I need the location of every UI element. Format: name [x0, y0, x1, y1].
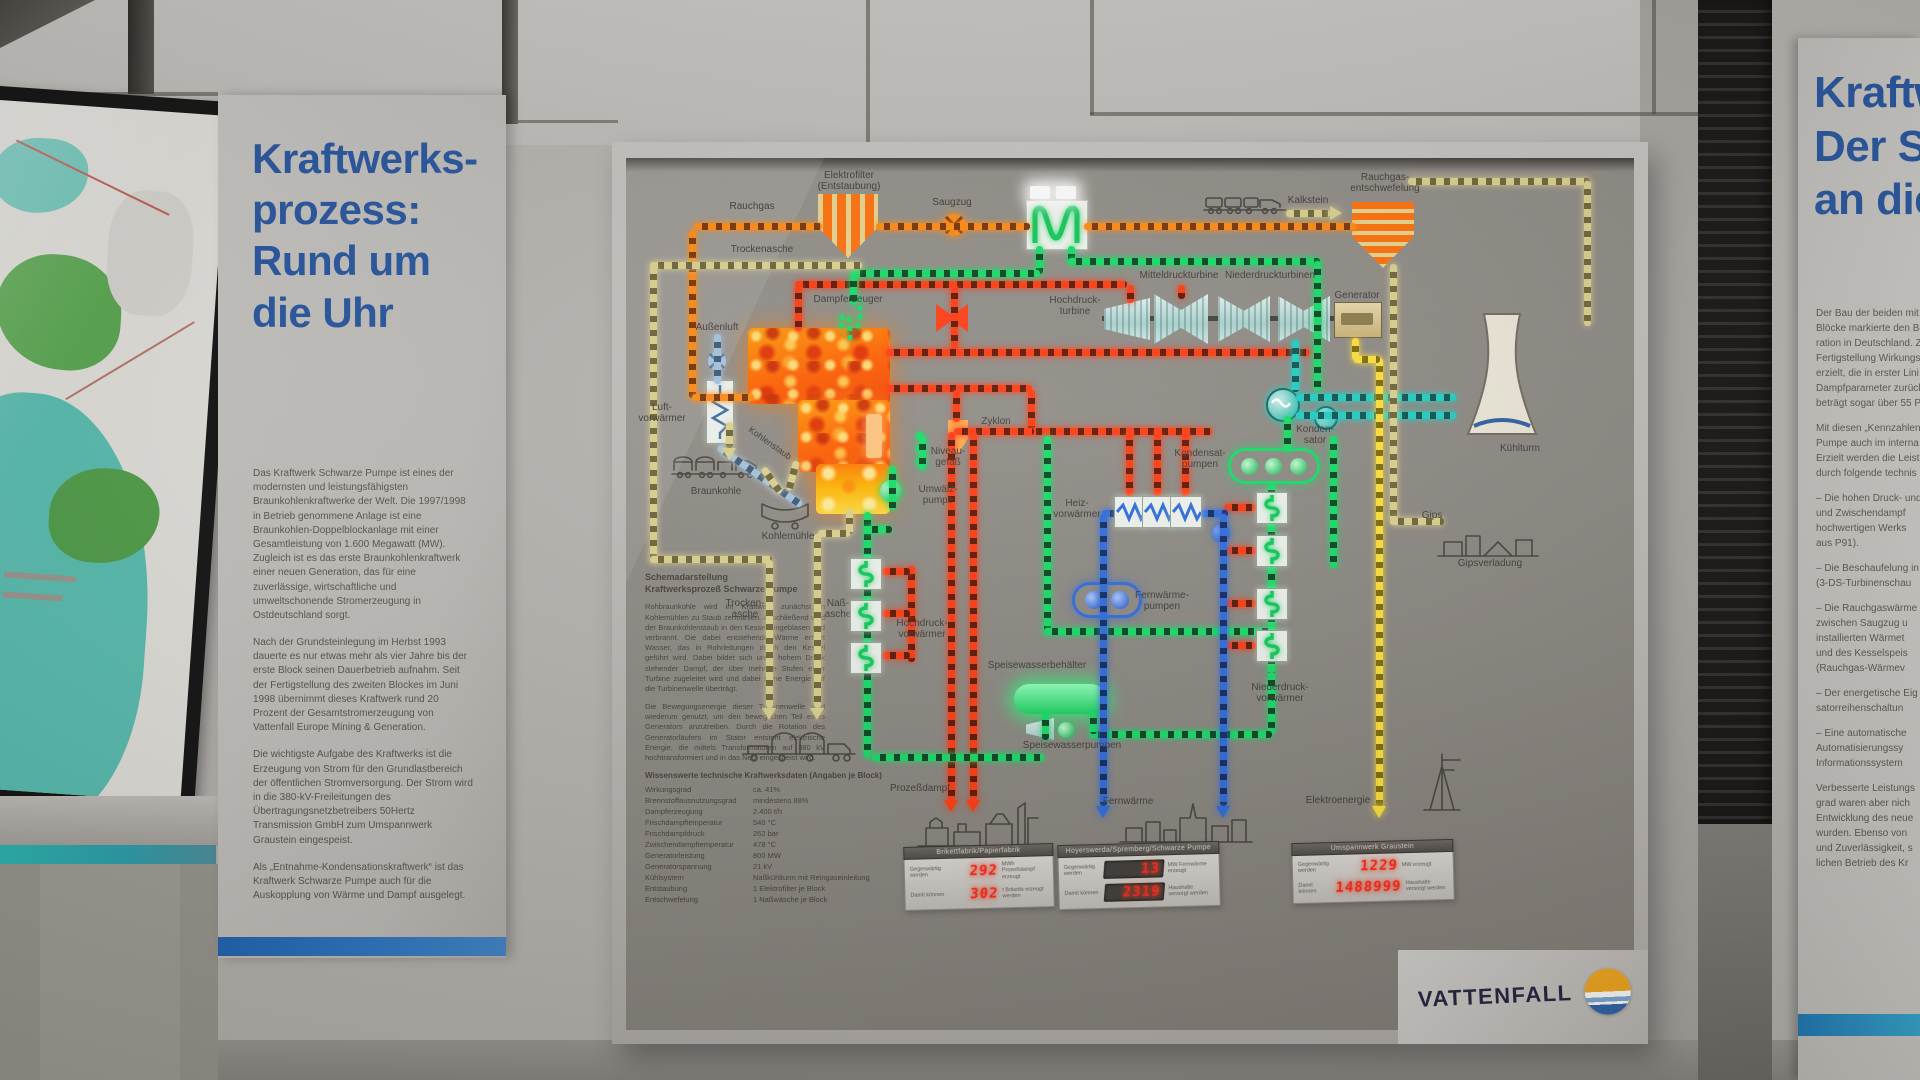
- pump-circle: [1290, 458, 1307, 475]
- mitteldruckturbine-icon: [1154, 294, 1208, 344]
- display-row-right-label: MW erzeugt: [1402, 861, 1448, 869]
- display-body: Gegenwärtig werden292MWh Prozeßdampf erz…: [904, 856, 1055, 911]
- legend-data-value: 800 MW: [753, 851, 875, 860]
- lbl-zyklon: Zyklon: [981, 416, 1010, 427]
- display-body: Gegenwärtig werden13MW Fernwärme erzeugt…: [1058, 854, 1221, 910]
- pipe-ndv-stub-2: [1224, 547, 1256, 554]
- hd-vorwaermer-box: [850, 558, 882, 590]
- pipe-umwaelz-v: [889, 466, 896, 510]
- right-panel-accent-stripe: [1798, 1014, 1920, 1036]
- arrow-luvo-asche: [722, 448, 736, 460]
- lbl-gipsverladung: Gipsverladung: [1458, 558, 1522, 569]
- legend-data-label: Dampferzeugung: [645, 807, 747, 816]
- pipe-rauchgas-riser: [689, 230, 696, 398]
- right-panel-bullet: – Die Rauchgaswärme zwischen Saugzug u i…: [1816, 601, 1920, 676]
- lbl-kohlemuehle: Kohlemühle: [762, 531, 815, 542]
- display-fernwaerme: Hoyerswerda/Spremberg/Schwarze PumpeGege…: [1057, 841, 1221, 910]
- legend-data-title: Wissenswerte technische Kraftwerksdaten …: [645, 771, 965, 780]
- pump-circle: [1241, 458, 1258, 475]
- legend-data-label: Frischdampfdruck: [645, 829, 747, 838]
- pipe-nassasche-h: [818, 530, 850, 537]
- pipe-fernwaerme-v1: [1100, 514, 1107, 806]
- pipe-rauchgas-efilter-saugzug: [876, 223, 1030, 230]
- pipe-rauchgas-to-efilter: [694, 223, 822, 230]
- pipe-svb-up: [1090, 710, 1097, 734]
- lbl-kuehlturm: Kühlturm: [1500, 443, 1540, 454]
- pipe-hdv-stub-3: [882, 652, 910, 659]
- hd-vorwaermer-box: [850, 642, 882, 674]
- led-value: 2319: [1104, 882, 1165, 902]
- pipe-right-extra: [1330, 436, 1337, 568]
- pipe-aussenluft-v: [714, 334, 721, 384]
- boiler-inner-glow: [866, 414, 882, 458]
- pipe-elektro-v: [1376, 358, 1383, 806]
- lbl-speisewasserbehaelter: Speisewasserbehälter: [988, 660, 1086, 671]
- rea-icon: [1352, 202, 1414, 268]
- display-row-left-label: Gegenwärtig werden: [910, 866, 946, 880]
- pipe-niveau-v: [919, 436, 926, 470]
- legend-data-label: Entschwefelung: [645, 895, 747, 904]
- pump-circle: [1111, 591, 1129, 609]
- nd-vorwaermer-box: [1256, 630, 1288, 662]
- pipe-loop-left: [1044, 436, 1051, 634]
- pipe-kondensat-v: [1314, 261, 1321, 391]
- pipe-loop-bottom: [1044, 628, 1272, 635]
- lbl-aussenluft: Außenluft: [696, 322, 739, 333]
- right-panel-title-line: Kraftw: [1814, 66, 1920, 120]
- lbl-elektrofilter: Elektrofilter (Entstaubung): [818, 170, 881, 193]
- led-value: 1488999: [1335, 878, 1402, 896]
- arrow-fernwaerme-2: [1216, 806, 1230, 818]
- display-row-left-label: Damit können: [1298, 882, 1332, 895]
- pipe-ndv-stub-3: [1224, 600, 1256, 607]
- led-value: 13: [1103, 859, 1164, 879]
- pipe-fernwaerme-v2: [1220, 514, 1227, 806]
- pipe-zyklon-v: [953, 390, 960, 422]
- legend-data-value: ca. 41%: [753, 785, 875, 794]
- elektrofilter-icon: [818, 194, 878, 258]
- speisewasserpumpe-turbine-icon: [1026, 718, 1054, 740]
- arrow-trockenasche: [762, 708, 776, 720]
- legend-data-label: Wirkungsgrad: [645, 785, 747, 794]
- display-body: Gegenwärtig werden1229MW erzeugtDamit kö…: [1292, 852, 1455, 904]
- pipe-hdv-green-v: [864, 512, 871, 758]
- right-text-panel: KraftwDer Stan die Der Bau der beiden mi…: [1798, 38, 1920, 1080]
- pipe-ndv-stub-4: [1224, 642, 1256, 649]
- legend-data-label: Zwischendampftemperatur: [645, 840, 747, 849]
- pipe-nassasche-v2: [814, 534, 821, 708]
- diagram-layer: Schemadarstellung Kraftwerksprozeß Schwa…: [0, 0, 1920, 1080]
- gipsverladung-icon: [1436, 524, 1540, 558]
- legend-data-label: Entstaubung: [645, 884, 747, 893]
- lbl-kondensatpumpen: Kondensat- pumpen: [1174, 448, 1225, 471]
- pipe-hdv-stub-1: [882, 568, 910, 575]
- generator-icon: [1334, 302, 1382, 338]
- lbl-ndvorwaermer: Niederdruck- vorwärmer: [1251, 682, 1308, 705]
- right-panel-bullet: – Die hohen Druck- und und Zwischendampf…: [1816, 491, 1920, 551]
- lbl-hdvorwaermer: Hochdruck- vorwärmer: [896, 618, 947, 641]
- pipe-trockenasche-h: [650, 262, 862, 269]
- vattenfall-logo-icon: [1584, 968, 1632, 1016]
- led-value: 292: [949, 863, 998, 880]
- pipe-kalkstein: [1286, 210, 1330, 217]
- led-value: 1229: [1337, 857, 1398, 875]
- legend-data-table: Wirkungsgradca. 41%Brennstoffausnutzungs…: [645, 785, 875, 904]
- pipe-heiz-stub-1: [1126, 432, 1133, 496]
- kondensator-icon: [1266, 388, 1300, 422]
- pipe-prozessdampf-link: [954, 428, 1034, 435]
- display-row: Gegenwärtig werden1229MW erzeugt: [1298, 856, 1448, 876]
- legend-paragraph: Die Bewegungsenergie dieser Turbinenwell…: [645, 702, 825, 763]
- niederdruckturbine-icon-2: [1278, 296, 1330, 342]
- hd-vorwaermer-box: [850, 600, 882, 632]
- legend-data-value: 262 bar: [753, 829, 875, 838]
- lbl-fernwaermepumpen: Fernwärme- pumpen: [1135, 590, 1189, 613]
- pipe-trockenasche-down: [766, 560, 773, 708]
- pipe-heiz-stub-2: [1154, 432, 1161, 496]
- kuehlturm-icon: [1450, 310, 1554, 440]
- display-row: Damit können1488999Haushalte versorgt we…: [1298, 877, 1448, 897]
- heizvorwaermer-box: [1170, 496, 1202, 528]
- lbl-nassasche: Naß- asche: [825, 598, 852, 621]
- kalkstein-train-icon: [1202, 190, 1288, 218]
- exhibit-photo: Kraftwerks-prozess:Rund umdie Uhr Das Kr…: [0, 0, 1920, 1080]
- legend-data-value: 1 Naßwäsche je Block: [753, 895, 875, 904]
- waescher-glow-lamp-1: [1030, 186, 1050, 199]
- legend-data-label: Generatorleistung: [645, 851, 747, 860]
- lbl-fernwaerme: Fernwärme: [1103, 796, 1154, 807]
- display-row: Damit können2319Haushalte versorgt werde…: [1064, 881, 1214, 903]
- lbl-hochdruckturbine: Hochdruck- turbine: [1049, 295, 1100, 318]
- lbl-rauchgas: Rauchgas: [729, 201, 774, 212]
- rauchgas-waermetauscher-icon: [1026, 200, 1088, 250]
- lbl-saugzug: Saugzug: [932, 197, 971, 208]
- kondensatpumpen-icon: [1228, 448, 1320, 484]
- right-panel-paragraph: Der Bau der beiden mit Blöcke markierte …: [1816, 306, 1920, 411]
- lbl-generator: Generator: [1334, 290, 1379, 301]
- pipe-hdv-stub-2: [882, 610, 910, 617]
- arrow-prozessdampf-2: [966, 800, 980, 812]
- pipe-umwaelz-h: [864, 526, 892, 533]
- led-value: 302: [950, 885, 999, 902]
- pipe-gen-down: [1352, 338, 1359, 360]
- right-panel-bullet: – Die Beschaufelung in (3-DS-Turbinensch…: [1816, 561, 1920, 591]
- arrow-elektroenergie: [1372, 806, 1386, 818]
- waescher-glow-lamp-2: [1056, 186, 1076, 199]
- right-panel-paragraph: Verbesserte Leistungs grad waren aber ni…: [1816, 781, 1920, 871]
- display-row-right-label: t Briketts erzeugt werden: [1002, 886, 1048, 900]
- lbl-elektroenergie: Elektroenergie: [1306, 795, 1370, 806]
- lbl-niveaugefaess: Niveau- gefäß: [931, 446, 965, 469]
- pipe-ndv-stub-1: [1224, 504, 1256, 511]
- legend-data-label: Frischdampftemperatur: [645, 818, 747, 827]
- display-row-right-label: MWh Prozeßdampf erzeugt: [1002, 860, 1048, 880]
- nd-vorwaermer-box: [1256, 492, 1288, 524]
- pipe-prozessdampf-2: [970, 432, 977, 800]
- pipe-svp-down: [1042, 712, 1049, 740]
- lbl-mitteldruckturbine: Mitteldruckturbine: [1140, 270, 1219, 281]
- lbl-kondensator: Konden- sator: [1296, 424, 1334, 447]
- vattenfall-logo: VATTENFALL: [1417, 967, 1639, 1029]
- generator-inner: [1341, 313, 1373, 325]
- pipe-muehle-arrow2: [785, 460, 800, 491]
- pipe-lp-exhaust: [1292, 340, 1299, 392]
- display-brikettfabrik: Brikettfabrik/PapierfabrikGegenwärtig we…: [903, 843, 1055, 911]
- pipe-svp-h: [872, 754, 1044, 761]
- pipe-asche-h: [650, 556, 772, 563]
- right-panel-bullet: – Eine automatische Automatisierungssy I…: [1816, 726, 1920, 771]
- arrow-nassasche: [810, 708, 824, 720]
- display-row-right-label: Haushalte versorgt werden: [1406, 879, 1449, 893]
- right-panel-title-line: an die: [1814, 173, 1920, 227]
- display-row-right-label: MW Fernwärme erzeugt: [1168, 861, 1214, 875]
- lbl-trockenasche-top: Trockenasche: [731, 244, 793, 255]
- pipe-eco-h: [852, 270, 1040, 277]
- pipe-luvo-asche: [726, 422, 733, 448]
- umspannwerk-mast-icon: [1416, 750, 1468, 814]
- lbl-gips: Gips: [1422, 510, 1443, 521]
- display-umspannwerk: Umspannwerk GrausteinGegenwärtig werden1…: [1291, 839, 1455, 904]
- right-panel-body: Der Bau der beiden mit Blöcke markierte …: [1816, 306, 1920, 881]
- fernwaermepumpen-icon: [1072, 582, 1142, 618]
- pipe-kondensat-h: [1068, 258, 1320, 265]
- legend-data-label: Generatorspannung: [645, 862, 747, 871]
- pipe-gips-v: [1390, 264, 1397, 522]
- lbl-heizvorwaermer: Heiz- vorwärmer: [1053, 498, 1100, 521]
- pump-circle: [1265, 458, 1282, 475]
- niederdruckturbine-icon-1: [1218, 296, 1270, 342]
- arrow-fernwaerme-1: [1096, 806, 1110, 818]
- right-panel-title-line: Der St: [1814, 120, 1920, 174]
- legend-data-label: Kühlsystem: [645, 873, 747, 882]
- display-row-left-label: Gegenwärtig werden: [1064, 864, 1100, 878]
- hochdruckturbine-icon: [1104, 298, 1150, 340]
- pipe-green-bottom: [1090, 731, 1272, 738]
- pipe-reingas-v: [1584, 181, 1591, 326]
- pipe-rauchgas-luvo: [692, 394, 754, 401]
- speisewasserpumpe-icon: [1058, 722, 1074, 738]
- display-row-left-label: Gegenwärtig werden: [1298, 861, 1334, 875]
- pipe-frischdampf: [795, 281, 1127, 288]
- lbl-prozessdampf: Prozeßdampf: [890, 783, 950, 794]
- display-row: Gegenwärtig werden13MW Fernwärme erzeugt: [1064, 858, 1214, 880]
- legend-data-label: Brennstoffausnutzungsgrad: [645, 796, 747, 805]
- nd-vorwaermer-box: [1256, 588, 1288, 620]
- lbl-braunkohle: Braunkohle: [691, 486, 742, 497]
- pipe-hp-feed: [1127, 285, 1134, 303]
- lbl-luftvorwaermer: Luft- vorwärmer: [638, 402, 685, 425]
- kohlemuehle-icon: [758, 498, 812, 530]
- lbl-speisewasserpumpen: Speisewasserpumpen: [1023, 740, 1121, 751]
- legend-data-value: 478 °C: [753, 840, 875, 849]
- legend-data-value: 540 °C: [753, 818, 875, 827]
- vattenfall-wordmark: VATTENFALL: [1417, 980, 1573, 1012]
- display-row: Gegenwärtig werden292MWh Prozeßdampf erz…: [910, 860, 1048, 883]
- lbl-trockenasche: Trocken- asche: [725, 598, 764, 621]
- legend-data-value: mindestens 88%: [753, 796, 875, 805]
- pipe-ext-down: [1028, 390, 1035, 432]
- lbl-rea: Rauchgas- entschwefelung: [1350, 172, 1420, 195]
- dampferzeuger-boiler: [748, 328, 890, 404]
- display-row-right-label: Haushalte versorgt werden: [1168, 884, 1214, 898]
- display-row-left-label: Damit können: [1064, 890, 1100, 897]
- pipe-frischdampf-riser: [795, 285, 802, 331]
- right-panel-title: KraftwDer Stan die: [1814, 66, 1920, 227]
- legend-data-value: Naßkühlturm mit Reingaseinleitung: [753, 873, 875, 882]
- brikettfabrik-icon: [916, 794, 1044, 848]
- pipe-rauchgas-to-rea: [1084, 223, 1356, 230]
- right-panel-bullet: – Der energetische Eig satorreihenschalt…: [1816, 686, 1920, 716]
- pipe-bypass: [951, 285, 958, 351]
- pipe-mp-feed: [1178, 285, 1185, 299]
- nd-vorwaermer-box: [1256, 535, 1288, 567]
- lbl-niederdruckturbinen: Niederdruckturbinen: [1225, 270, 1315, 281]
- pipe-reingas-h: [1408, 178, 1590, 185]
- arrow-kalkstein: [1330, 206, 1342, 220]
- lbl-kalkstein: Kalkstein: [1288, 195, 1329, 206]
- right-panel-paragraph: Mit diesen „Kennzahlen Pumpe auch im int…: [1816, 421, 1920, 481]
- pipe-kalte-zue: [886, 349, 1310, 356]
- lbl-dampferzeuger: Dampferzeuger: [814, 294, 883, 305]
- arrow-prozessdampf-1: [944, 800, 958, 812]
- pipe-cond-to-pumps: [1284, 416, 1291, 452]
- legend-data-value: 1 Elektrofilter je Block: [753, 884, 875, 893]
- display-row: Damit können302t Briketts erzeugt werden: [910, 884, 1048, 904]
- lbl-umwaelzpumpe: Umwälz- pumpe: [919, 484, 958, 507]
- display-row-left-label: Damit können: [910, 892, 946, 899]
- legend-data-value: 2.400 t/h: [753, 807, 875, 816]
- legend-data-value: 21 kV: [753, 862, 875, 871]
- boiler-ash-hopper: [816, 464, 890, 514]
